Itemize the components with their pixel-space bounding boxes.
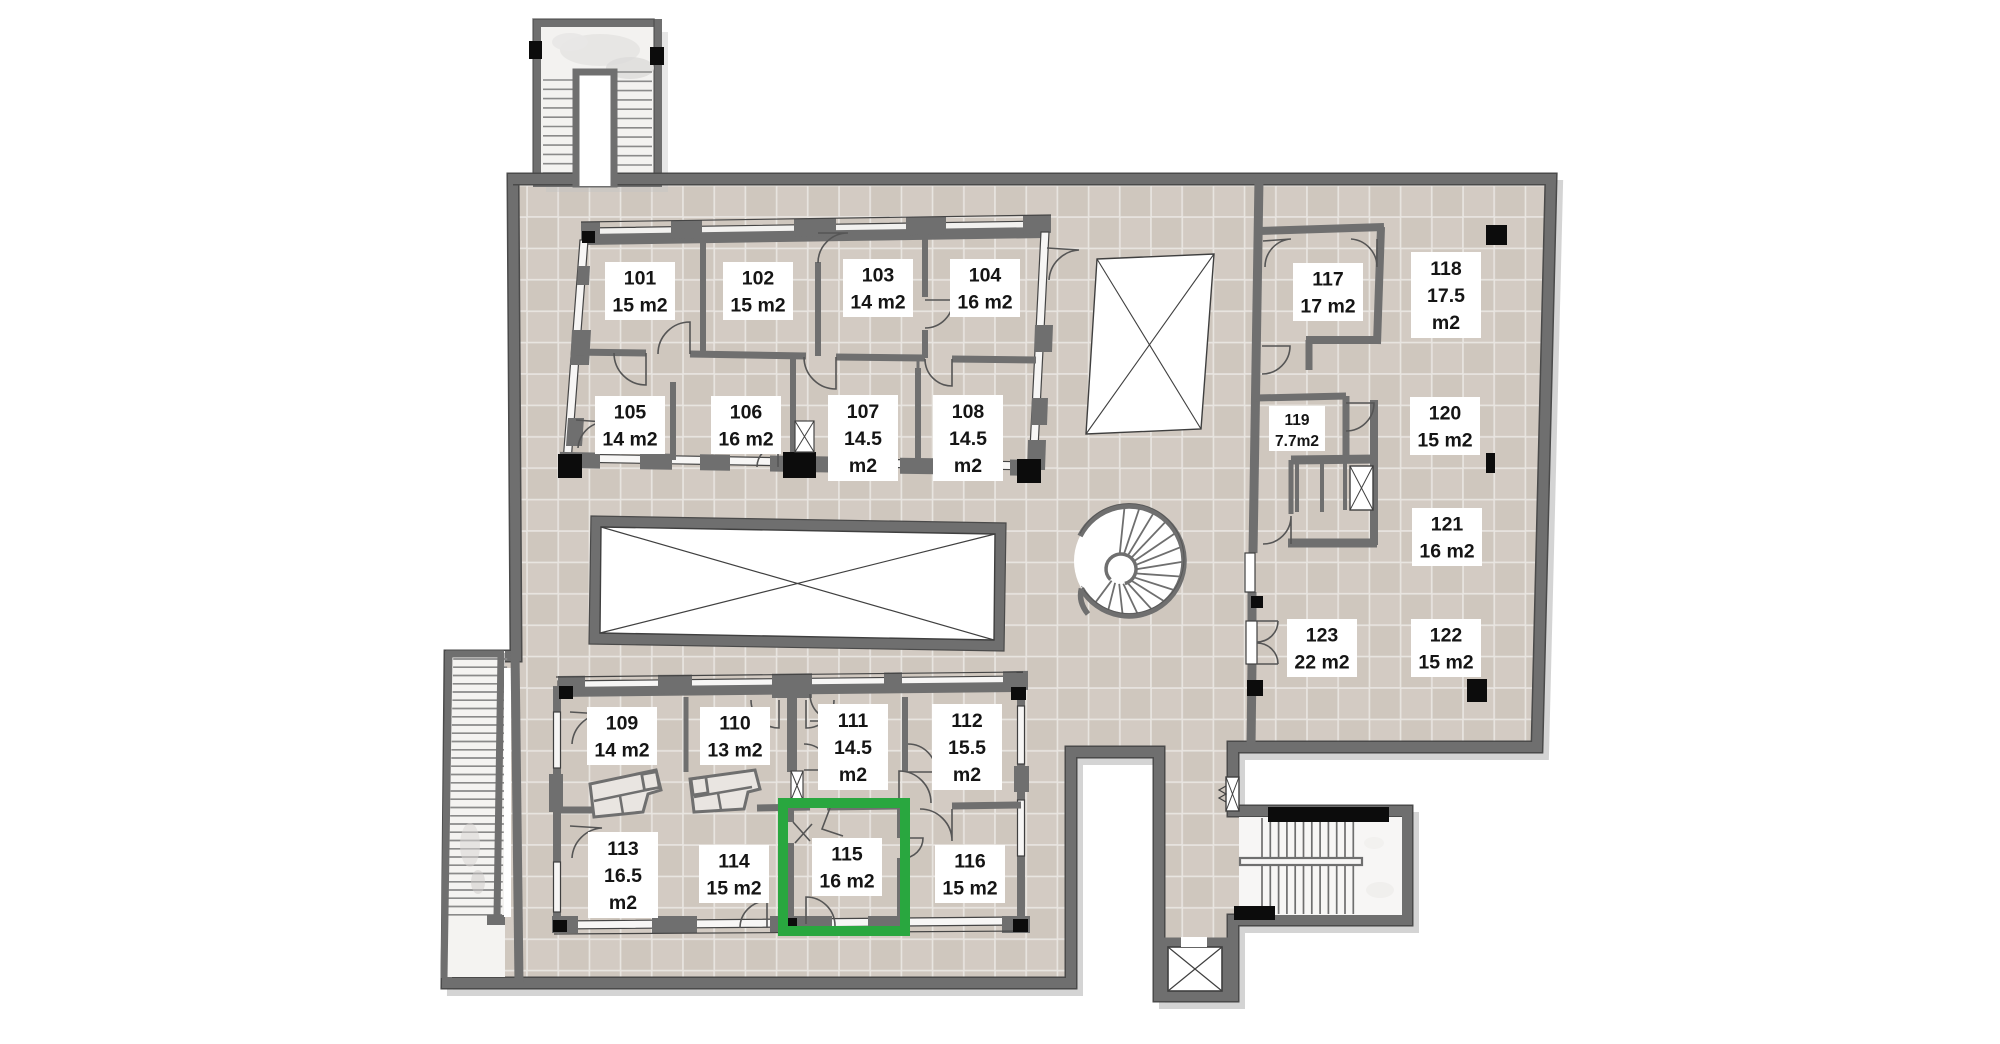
svg-text:16 m2: 16 m2 — [957, 292, 1012, 314]
svg-text:15 m2: 15 m2 — [706, 878, 761, 900]
svg-text:123: 123 — [1306, 625, 1339, 647]
svg-text:m2: m2 — [849, 455, 877, 477]
svg-text:103: 103 — [862, 265, 895, 287]
svg-text:16 m2: 16 m2 — [1419, 541, 1474, 563]
svg-text:14 m2: 14 m2 — [594, 740, 649, 762]
svg-text:m2: m2 — [839, 764, 867, 786]
svg-text:15 m2: 15 m2 — [730, 295, 785, 317]
svg-text:14.5: 14.5 — [834, 737, 872, 759]
svg-text:14 m2: 14 m2 — [602, 429, 657, 451]
svg-text:16 m2: 16 m2 — [718, 429, 773, 451]
svg-text:104: 104 — [969, 265, 1002, 287]
svg-text:22 m2: 22 m2 — [1294, 652, 1349, 674]
svg-text:17.5: 17.5 — [1427, 285, 1465, 307]
svg-text:111: 111 — [838, 710, 869, 732]
svg-text:15.5: 15.5 — [948, 737, 986, 759]
svg-text:105: 105 — [614, 402, 647, 424]
svg-text:116: 116 — [954, 851, 986, 873]
svg-text:m2: m2 — [1432, 312, 1460, 334]
svg-text:106: 106 — [730, 402, 763, 424]
svg-text:m2: m2 — [954, 455, 982, 477]
svg-text:101: 101 — [624, 268, 657, 290]
svg-text:114: 114 — [718, 851, 750, 873]
svg-text:118: 118 — [1430, 258, 1462, 280]
svg-text:15 m2: 15 m2 — [942, 878, 997, 900]
svg-text:m2: m2 — [609, 892, 637, 914]
svg-text:122: 122 — [1430, 625, 1463, 647]
svg-text:115: 115 — [831, 844, 863, 866]
svg-text:16.5: 16.5 — [604, 865, 642, 887]
svg-text:121: 121 — [1431, 514, 1464, 536]
svg-text:120: 120 — [1429, 403, 1462, 425]
svg-text:110: 110 — [719, 713, 751, 735]
svg-text:117: 117 — [1312, 269, 1343, 291]
svg-text:14.5: 14.5 — [949, 428, 987, 450]
svg-text:119: 119 — [1284, 412, 1309, 429]
svg-text:113: 113 — [607, 838, 639, 860]
svg-text:108: 108 — [952, 401, 985, 423]
svg-text:15 m2: 15 m2 — [1417, 430, 1472, 452]
svg-text:112: 112 — [951, 710, 983, 732]
svg-text:13 m2: 13 m2 — [707, 740, 762, 762]
svg-text:15 m2: 15 m2 — [1418, 652, 1473, 674]
svg-text:m2: m2 — [953, 764, 981, 786]
svg-text:14 m2: 14 m2 — [850, 292, 905, 314]
svg-text:14.5: 14.5 — [844, 428, 882, 450]
svg-text:102: 102 — [742, 268, 775, 290]
svg-text:16 m2: 16 m2 — [819, 871, 874, 893]
svg-text:109: 109 — [606, 713, 639, 735]
svg-text:7.7m2: 7.7m2 — [1275, 433, 1319, 450]
svg-text:15 m2: 15 m2 — [612, 295, 667, 317]
svg-text:107: 107 — [847, 401, 880, 423]
svg-text:17 m2: 17 m2 — [1300, 296, 1355, 318]
